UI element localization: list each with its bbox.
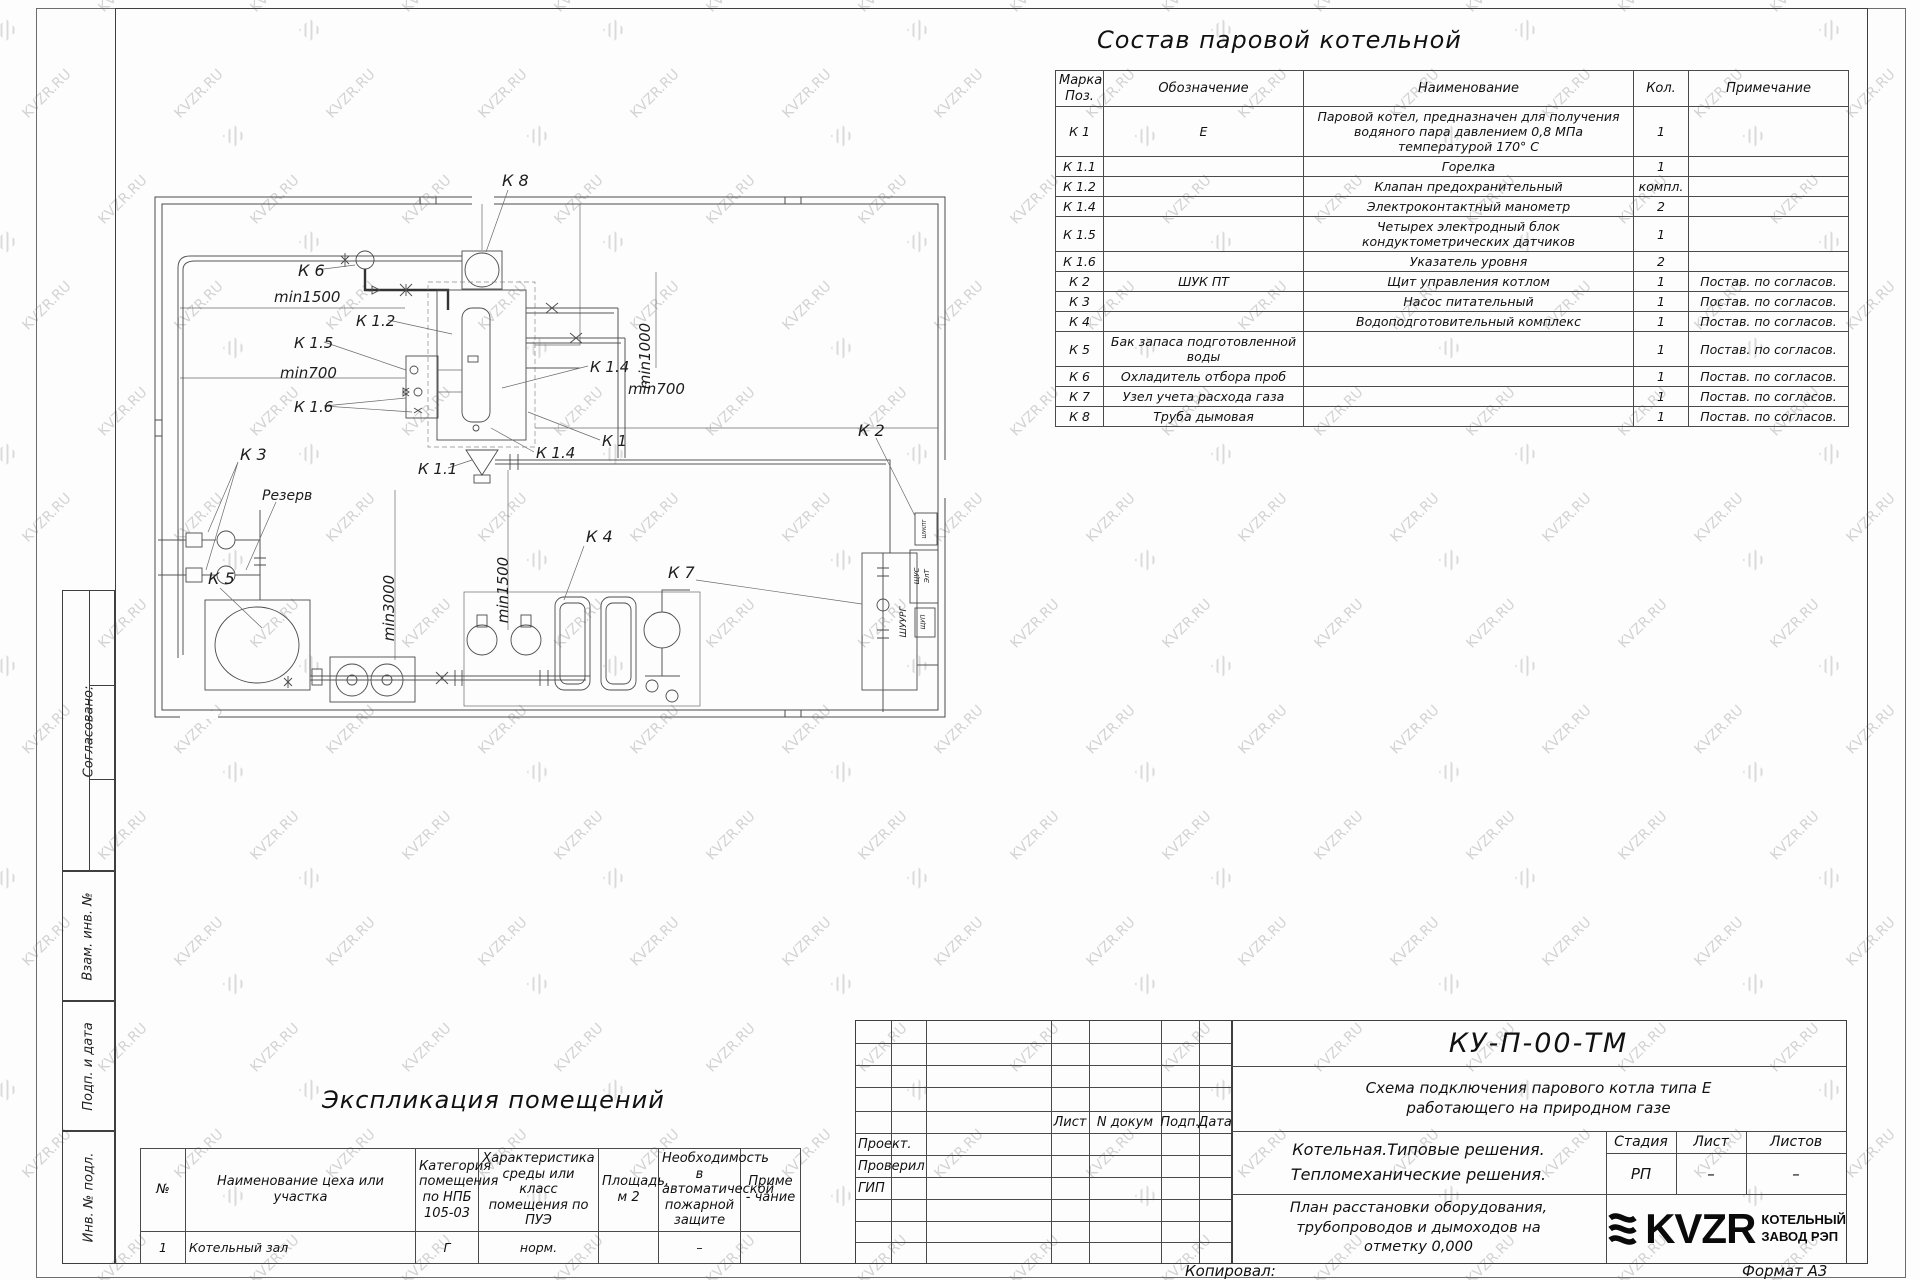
cell-name xyxy=(1304,407,1634,427)
doc-subtitle: Схема подключения парового котла типа Е … xyxy=(1231,1066,1846,1131)
title-block: Лист N докум Подп. Дата Проект. Проверил… xyxy=(855,1020,1847,1264)
project-line-1: Котельная.Типовые решения. xyxy=(1292,1138,1544,1163)
cell-name: Клапан предохранительный xyxy=(1304,177,1634,197)
cell-name xyxy=(1304,332,1634,367)
sheets-value: – xyxy=(1746,1153,1846,1194)
cell-category: Г xyxy=(416,1231,479,1263)
stage-header: Стадия xyxy=(1606,1131,1676,1153)
cell-qty: 1 xyxy=(1634,367,1689,387)
sheet-caption: План расстановки оборудования, трубопров… xyxy=(1231,1194,1606,1263)
cell-mark: К 4 xyxy=(1056,312,1104,332)
cell-name: Паровой котел, предназначен для получени… xyxy=(1304,107,1634,157)
cell-note: Постав. по согласов. xyxy=(1689,387,1849,407)
cell-mark: К 1.5 xyxy=(1056,217,1104,252)
cell-mark: К 1.1 xyxy=(1056,157,1104,177)
plan-label: К 8 xyxy=(502,171,529,190)
kvzr-logo-icon xyxy=(1606,1209,1639,1249)
cell-designation xyxy=(1104,312,1304,332)
cell-note: Постав. по согласов. xyxy=(1689,292,1849,312)
equipment-row: К 7Узел учета расхода газа1Постав. по со… xyxy=(1056,387,1849,407)
cell-name: Указатель уровня xyxy=(1304,252,1634,272)
cell-note xyxy=(1689,177,1849,197)
cell-mark: К 8 xyxy=(1056,407,1104,427)
role-project: Проект. xyxy=(856,1133,918,1155)
cell-mark: К 5 xyxy=(1056,332,1104,367)
plan-label: К 1.1 xyxy=(418,460,457,478)
boiler-drum xyxy=(462,308,490,422)
col-num: № xyxy=(141,1149,186,1232)
plan-label: К 7 xyxy=(668,563,695,582)
stamp-soglasovano: Согласовано: xyxy=(62,590,115,872)
equipment-table: Марка Поз. Обозначение Наименование Кол.… xyxy=(1055,70,1849,427)
role-checked: Проверил xyxy=(856,1155,930,1177)
pilaster xyxy=(155,420,162,436)
chimney-axis xyxy=(482,204,580,345)
cell-qty: 1 xyxy=(1634,407,1689,427)
door-gap-right xyxy=(939,460,947,498)
boiler-fitting xyxy=(473,425,479,431)
drawing-sheet: KVZR.RUKVZR.RUKVZR.RUKVZR.RUKVZR.RUKVZR.… xyxy=(0,0,1920,1280)
stage-value: РП xyxy=(1606,1153,1676,1194)
col-fire: Необходимость в автоматической пожарной … xyxy=(659,1149,741,1232)
cell-name xyxy=(1304,367,1634,387)
format-label: Формат А3 xyxy=(1742,1262,1827,1280)
cell-designation: Труба дымовая xyxy=(1104,407,1304,427)
plan-label: ШУКПТ xyxy=(922,519,928,539)
cell-qty: 1 xyxy=(1634,107,1689,157)
cell-qty: 1 xyxy=(1634,332,1689,367)
company-logo: KVZR КОТЕЛЬНЫЙ ЗАВОД РЭП xyxy=(1606,1194,1846,1263)
role-gip: ГИП xyxy=(856,1177,918,1199)
caption-line-2: трубопроводов и дымоходов на xyxy=(1296,1219,1540,1239)
cell-qty: 1 xyxy=(1634,272,1689,292)
boiler-room-plan: К 8К 6min1500К 1.2К 1.5min700К 1.6К 1.4m… xyxy=(150,160,960,732)
explication-title: Экспликация помещений xyxy=(322,1086,665,1114)
cell-qty: 1 xyxy=(1634,217,1689,252)
plan-label: К 3 xyxy=(240,445,267,464)
cell-note xyxy=(741,1231,801,1263)
k4-tank-1-inner xyxy=(560,603,585,684)
cell-name: Насос питательный xyxy=(1304,292,1634,312)
cell-note xyxy=(1689,252,1849,272)
stamp-podp-data: Подп. и дата xyxy=(62,1000,115,1132)
cell-note: Постав. по согласов. xyxy=(1689,272,1849,292)
explication-table: № Наименование цеха или участка Категори… xyxy=(140,1148,801,1264)
pump-motor xyxy=(186,533,202,547)
explication-row: 1Котельный залГнорм.– xyxy=(141,1231,801,1263)
pilaster xyxy=(420,197,436,204)
col-environment: Характеристика среды или класс помещения… xyxy=(479,1149,599,1232)
cell-area xyxy=(599,1231,659,1263)
equipment-row: К 8Труба дымовая1Постав. по согласов. xyxy=(1056,407,1849,427)
cell-fire: – xyxy=(659,1231,741,1263)
stamp-vzam-inv-label: Взам. инв. № xyxy=(81,892,96,980)
plan-label: ШУУРГ xyxy=(899,606,909,638)
pump-motor xyxy=(186,568,202,582)
cell-note: Постав. по согласов. xyxy=(1689,332,1849,367)
tank-ellipse xyxy=(215,607,299,683)
pipe-to-gas-unit xyxy=(495,460,890,553)
watermark-logo-icon xyxy=(0,443,17,466)
stamp-vzam-inv: Взам. инв. № xyxy=(62,870,115,1002)
door-gap-bottom xyxy=(180,711,218,719)
cell-note xyxy=(1689,197,1849,217)
cell-designation xyxy=(1104,197,1304,217)
copied-label: Копировал: xyxy=(1185,1262,1276,1280)
funnel-base xyxy=(474,475,490,483)
cell-mark: К 3 xyxy=(1056,292,1104,312)
stub-valves xyxy=(546,303,582,343)
equipment-row: К 4Водоподготовительный комплекс1Постав.… xyxy=(1056,312,1849,332)
cell-mark: К 1.2 xyxy=(1056,177,1104,197)
k4-valve-1 xyxy=(646,680,658,692)
plan-label: min1500 xyxy=(494,557,512,623)
plan-label: К 5 xyxy=(208,569,235,588)
cell-mark: К 1.4 xyxy=(1056,197,1104,217)
cell-name: Щит управления котлом xyxy=(1304,272,1634,292)
equipment-row: К 1ЕПаровой котел, предназначен для полу… xyxy=(1056,107,1849,157)
equipment-row: К 1.2Клапан предохранительныйкомпл. xyxy=(1056,177,1849,197)
sheets-header: Листов xyxy=(1746,1131,1846,1153)
cell-designation: ШУК ПТ xyxy=(1104,272,1304,292)
project-line-2: Тепломеханические решения. xyxy=(1291,1163,1546,1188)
cell-note: Постав. по согласов. xyxy=(1689,367,1849,387)
cell-environment: норм. xyxy=(479,1231,599,1263)
equipment-row: К 1.4Электроконтактный манометр2 xyxy=(1056,197,1849,217)
watermark-logo-icon xyxy=(0,19,17,42)
cell-qty: 1 xyxy=(1634,157,1689,177)
cell-qty: 2 xyxy=(1634,252,1689,272)
k4-gauge-2 xyxy=(511,625,541,655)
gap-chimney xyxy=(472,196,494,206)
col-date: Дата xyxy=(1199,1111,1231,1133)
cell-mark: К 1 xyxy=(1056,107,1104,157)
plan-label: ЭлТ xyxy=(923,568,931,583)
cell-note xyxy=(1689,217,1849,252)
cell-designation: Охладитель отбора проб xyxy=(1104,367,1304,387)
col-mark: Марка Поз. xyxy=(1056,71,1104,107)
dim-lines-bottom xyxy=(395,470,508,660)
cell-name: Горелка xyxy=(1304,157,1634,177)
plan-label: ЩУП xyxy=(920,614,927,629)
equipment-table-title: Состав паровой котельной xyxy=(1097,26,1462,54)
pilaster xyxy=(785,197,801,204)
cell-num: 1 xyxy=(141,1231,186,1263)
col-category: Категория помещения по НПБ 105-03 xyxy=(416,1149,479,1232)
stamp-inv-podl: Инв. № подл. xyxy=(62,1130,115,1264)
col-sign: Подп. xyxy=(1161,1111,1199,1133)
plan-label: К 1 xyxy=(602,432,627,450)
cell-name: Водоподготовительный комплекс xyxy=(1304,312,1634,332)
water-tank-k5 xyxy=(205,600,310,690)
cell-designation: Узел учета расхода газа xyxy=(1104,387,1304,407)
col-doc: N докум xyxy=(1089,1111,1161,1133)
caption-line-3: отметку 0,000 xyxy=(1364,1238,1473,1258)
cell-mark: К 1.6 xyxy=(1056,252,1104,272)
stamp-inv-podl-label: Инв. № подл. xyxy=(81,1152,96,1242)
col-note: Примечание xyxy=(1689,71,1849,107)
tank-vent-icon xyxy=(284,676,292,688)
cell-note xyxy=(1689,157,1849,177)
sheet-value: – xyxy=(1676,1153,1746,1194)
col-room-name: Наименование цеха или участка xyxy=(186,1149,416,1232)
level-panel-k15-k16 xyxy=(406,356,438,418)
logo-caption-line-1: КОТЕЛЬНЫЙ xyxy=(1761,1212,1846,1228)
asterisk-mark xyxy=(341,253,349,267)
train-fittings xyxy=(436,670,548,686)
plan-label: К 1.4 xyxy=(536,444,575,462)
plan-labels: К 8К 6min1500К 1.2К 1.5min700К 1.6К 1.4m… xyxy=(208,171,885,641)
k4-vessel xyxy=(644,612,680,648)
plan-label: min700 xyxy=(280,364,337,382)
cell-mark: К 6 xyxy=(1056,367,1104,387)
cell-mark: К 7 xyxy=(1056,387,1104,407)
col-sheet: Лист xyxy=(1051,1111,1089,1133)
equipment-row: К 1.6Указатель уровня2 xyxy=(1056,252,1849,272)
k4-valve-2 xyxy=(666,690,678,702)
k4-piping xyxy=(645,590,690,676)
doc-number: КУ-П-00-ТМ xyxy=(1231,1021,1846,1066)
plan-label: К 1.5 xyxy=(294,334,333,352)
sample-cooler-k6 xyxy=(356,251,374,269)
subtitle-line-1: Схема подключения парового котла типа Е xyxy=(1366,1079,1712,1099)
flange-ticks xyxy=(510,454,518,470)
cell-designation xyxy=(1104,217,1304,252)
cell-name: Электроконтактный манометр xyxy=(1304,197,1634,217)
explication-table-header: № Наименование цеха или участка Категори… xyxy=(141,1149,801,1232)
panel-gauge xyxy=(414,388,422,396)
cell-designation: Е xyxy=(1104,107,1304,157)
cell-designation: Бак запаса подготовленной воды xyxy=(1104,332,1304,367)
cell-designation xyxy=(1104,292,1304,312)
panel-links xyxy=(438,370,462,392)
equipment-row: К 5Бак запаса подготовленной воды1Постав… xyxy=(1056,332,1849,367)
dim-lines-right xyxy=(535,272,938,428)
watermark-logo-icon xyxy=(0,655,17,678)
col-area: Площадь, м 2 xyxy=(599,1149,659,1232)
plan-label: К 1.4 xyxy=(590,358,629,376)
subtitle-line-2: работающего на природном газе xyxy=(1406,1099,1670,1119)
caption-line-1: План расстановки оборудования, xyxy=(1290,1199,1547,1219)
pilaster xyxy=(785,710,801,717)
equipment-row: К 3Насос питательный1Постав. по согласов… xyxy=(1056,292,1849,312)
equipment-row: К 1.5Четырех электродный блок кондуктоме… xyxy=(1056,217,1849,252)
cell-qty: 1 xyxy=(1634,312,1689,332)
cell-qty: 1 xyxy=(1634,387,1689,407)
cell-mark: К 2 xyxy=(1056,272,1104,292)
cell-designation xyxy=(1104,177,1304,197)
panel-valve xyxy=(414,408,422,413)
boiler-gauge xyxy=(468,356,478,362)
cell-designation xyxy=(1104,252,1304,272)
cell-qty: 1 xyxy=(1634,292,1689,312)
equipment-table-header: Марка Поз. Обозначение Наименование Кол.… xyxy=(1056,71,1849,107)
plan-label: К 1.2 xyxy=(356,312,395,330)
plan-label: К 2 xyxy=(858,421,885,440)
watermark-logo-icon xyxy=(0,231,17,254)
equipment-row: К 2ШУК ПТЩит управления котлом1Постав. п… xyxy=(1056,272,1849,292)
plan-label: К 4 xyxy=(586,527,613,546)
cell-name: Четырех электродный блок кондуктометриче… xyxy=(1304,217,1634,252)
plan-label: min1500 xyxy=(274,288,340,306)
plan-label: min3000 xyxy=(380,575,398,641)
project-name: Котельная.Типовые решения. Тепломеханиче… xyxy=(1231,1131,1606,1194)
cell-designation xyxy=(1104,157,1304,177)
cell-qty: компл. xyxy=(1634,177,1689,197)
plan-label: Резерв xyxy=(262,488,312,504)
cell-note: Постав. по согласов. xyxy=(1689,312,1849,332)
watermark-logo-icon xyxy=(0,867,17,890)
k4-gauge-1 xyxy=(467,625,497,655)
plan-label: min700 xyxy=(628,380,685,398)
cell-qty: 2 xyxy=(1634,197,1689,217)
watermark-logo-icon xyxy=(0,1079,17,1102)
cell-note xyxy=(1689,107,1849,157)
flue-housing xyxy=(462,251,502,289)
funnel-k11 xyxy=(466,450,498,475)
plan-label: К 1.6 xyxy=(294,398,333,416)
col-designation: Обозначение xyxy=(1104,71,1304,107)
plan-label: К 6 xyxy=(298,261,325,280)
pipe-main-1 xyxy=(178,256,462,658)
logo-caption-line-2: ЗАВОД РЭП xyxy=(1761,1229,1846,1245)
cell-note: Постав. по согласов. xyxy=(1689,407,1849,427)
equipment-row: К 6Охладитель отбора проб1Постав. по сог… xyxy=(1056,367,1849,387)
col-name: Наименование xyxy=(1304,71,1634,107)
kvzr-logo-caption: КОТЕЛЬНЫЙ ЗАВОД РЭП xyxy=(1761,1212,1846,1245)
cell-room-name: Котельный зал xyxy=(186,1231,416,1263)
train-fitting-box xyxy=(312,669,322,685)
stamp-podp-data-label: Подп. и дата xyxy=(81,1022,96,1111)
plan-label: ЩУС xyxy=(913,567,921,584)
col-qty: Кол. xyxy=(1634,71,1689,107)
kvzr-logo-text: KVZR xyxy=(1645,1205,1755,1253)
cell-name xyxy=(1304,387,1634,407)
equipment-row: К 1.1Горелка1 xyxy=(1056,157,1849,177)
feed-pump-k3 xyxy=(217,531,235,549)
panel-gauge xyxy=(410,366,418,374)
sheet-header: Лист xyxy=(1676,1131,1746,1153)
k4-tank-2-inner xyxy=(606,603,631,684)
boiler-body-k1 xyxy=(437,290,526,440)
pipe-main-2 xyxy=(183,261,462,655)
